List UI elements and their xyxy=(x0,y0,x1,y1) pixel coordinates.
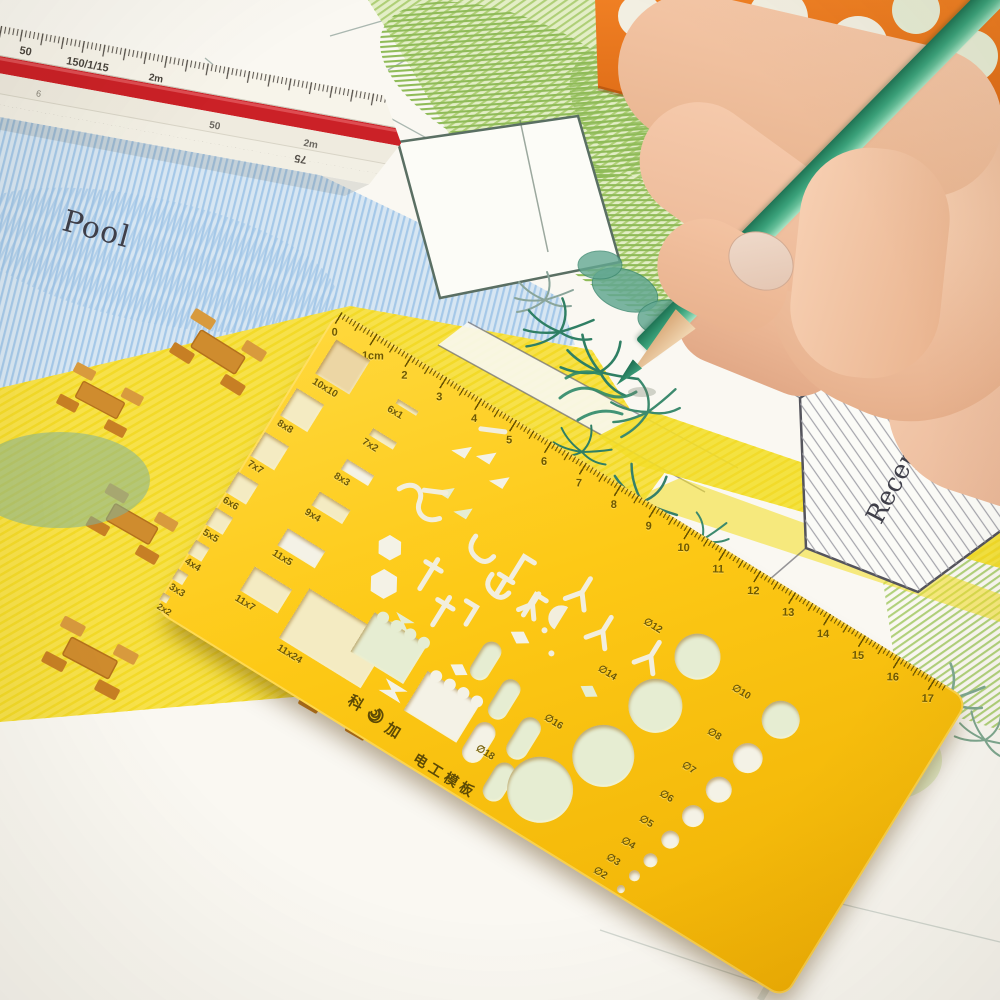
fork-hole xyxy=(634,637,668,674)
fuse-hole xyxy=(412,555,445,593)
scale-ruler-mark: 50 xyxy=(18,45,32,59)
photo-scene: 50 150/1/15 2m 9 6 50 2m 75 Pool Recepti… xyxy=(0,0,1000,1000)
slash-hole xyxy=(424,483,446,501)
pencil-tip-shadow xyxy=(628,387,656,397)
fuse-hole xyxy=(425,593,457,630)
bracket-hole xyxy=(512,557,535,584)
scale-ruler: 50 150/1/15 2m 9 6 50 2m 75 xyxy=(0,0,470,212)
halfmoon-hole xyxy=(543,600,568,629)
slash-hole xyxy=(481,420,505,440)
bracket-hole xyxy=(456,601,477,624)
s-curve-hole xyxy=(393,480,447,525)
dot-hole xyxy=(547,649,555,657)
dot-hole xyxy=(540,626,548,634)
fork-hole xyxy=(565,573,599,610)
fork-hole xyxy=(586,612,620,649)
scale-ruler-mark: 75 xyxy=(294,152,308,166)
hook-hole xyxy=(466,536,498,565)
